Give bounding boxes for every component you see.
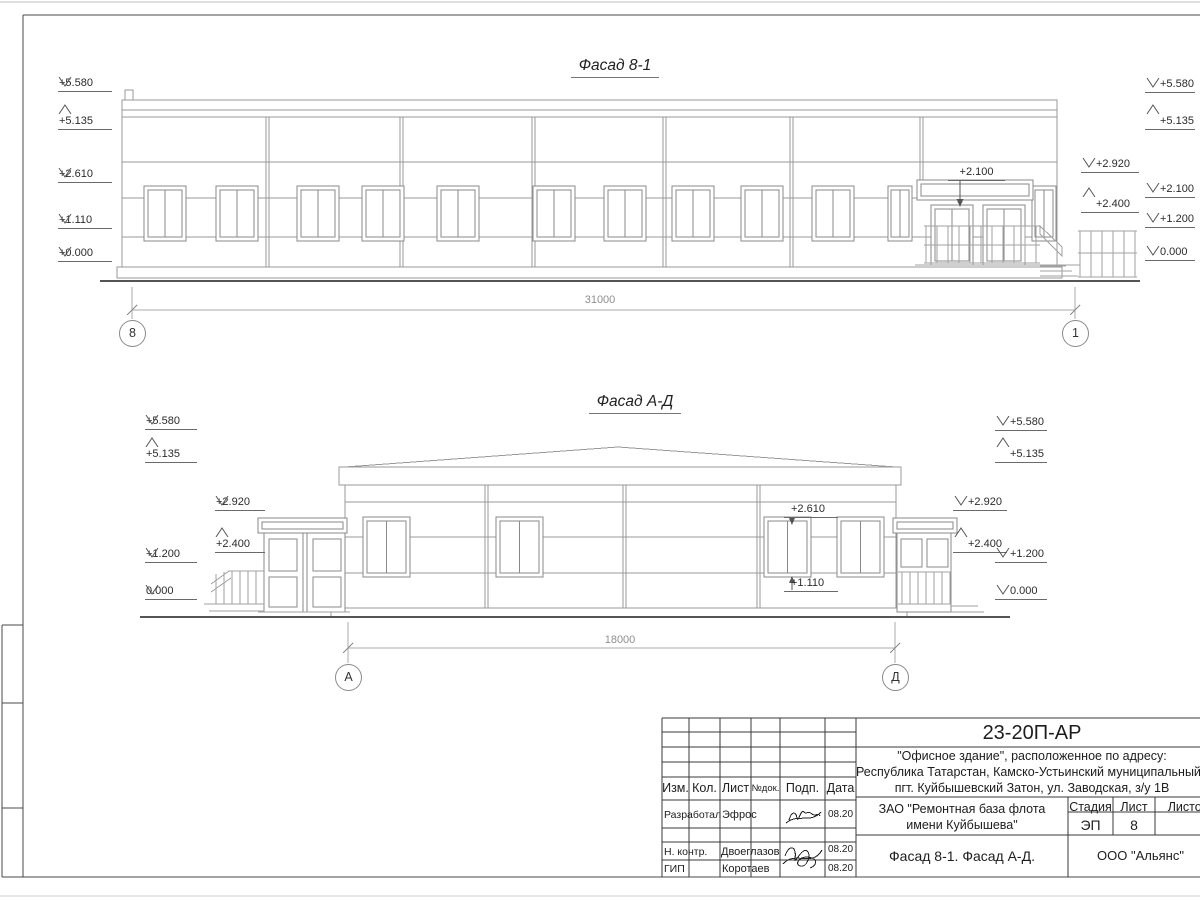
titleblock-row-name: Эфрос [722, 806, 757, 824]
level-arrow-up-icon [215, 527, 229, 537]
titleblock-col-kol: Кол. [689, 778, 720, 798]
facade2-title: Фасад А-Д [560, 393, 710, 414]
elevation-mark: 0.000 [145, 585, 197, 600]
level-arrow-down-icon [145, 585, 159, 595]
facade-8-1-drawing [100, 90, 1140, 319]
level-arrow-down-icon [996, 548, 1010, 558]
axis-marker: 8 [119, 320, 146, 347]
window-top-level-mark: +2.610 [784, 503, 838, 518]
elevation-mark: +2.610 [58, 168, 112, 183]
titleblock-address-line1: "Офисное здание", расположенное по адрес… [856, 748, 1200, 765]
titleblock-address-line3: пгт. Куйбышевский Затон, ул. Заводская, … [856, 780, 1200, 797]
drawing-sheet: Фасад 8-1 Фасад А-Д +5.580 +5.135 +2.610… [0, 0, 1200, 900]
ramp-railing [1078, 231, 1137, 277]
elevation-mark: +5.580 [58, 77, 112, 92]
axis-marker: А [335, 664, 362, 691]
titleblock-row-role: ГИП [664, 860, 685, 878]
elevation-mark: +5.135 [145, 448, 197, 463]
elevation-mark: +2.920 [1081, 158, 1139, 173]
elevation-mark: +1.110 [58, 214, 112, 229]
titleblock-sheets-label: Листов [1158, 797, 1200, 817]
titleblock-row-role: Н. контр. [664, 843, 707, 861]
titleblock-col-podp: Подп. [780, 778, 825, 798]
elevation-mark: 0.000 [1145, 246, 1195, 261]
elevation-mark: +5.580 [145, 415, 197, 430]
level-arrow-down-icon [996, 585, 1010, 595]
elevation-mark: +2.100 [1145, 183, 1195, 198]
level-arrow-down-icon [996, 416, 1010, 426]
titleblock-sheet-value: 8 [1113, 814, 1155, 836]
elevation-mark: +5.135 [995, 448, 1047, 463]
level-arrow-down-icon [1146, 213, 1160, 223]
level-arrow-down-icon [1146, 246, 1160, 256]
elevation-mark: +5.135 [58, 115, 112, 130]
facade1-title: Фасад 8-1 [540, 57, 690, 78]
axis-marker: Д [882, 664, 909, 691]
titleblock-row-role: Разработал [664, 806, 721, 824]
elevation-mark: +1.200 [995, 548, 1047, 563]
facade-a-d-drawing [140, 447, 1010, 663]
titleblock-document-code: 23-20П-АР [856, 720, 1200, 746]
titleblock-row-date: 08.20 [826, 860, 855, 878]
level-arrow-up-icon [996, 437, 1010, 447]
titleblock-company: ООО "Альянс" [1068, 842, 1200, 870]
elevation-mark: +5.580 [1145, 78, 1195, 93]
titleblock-col-data: Дата [825, 778, 856, 798]
elevation-mark: +5.135 [1145, 115, 1195, 130]
elevation-mark: +2.400 [1081, 198, 1139, 213]
level-arrow-up-icon [954, 527, 968, 537]
titleblock-col-izm: Изм. [662, 778, 689, 798]
titleblock-row-name: Двоеглазов [721, 843, 779, 861]
titleblock-client-line2: имени Куйбышева" [858, 817, 1066, 833]
titleblock-col-ndok: №док. [751, 778, 780, 799]
level-arrow-up-icon [1146, 104, 1160, 114]
level-arrow-down-icon [215, 496, 229, 506]
titleblock-row-name: Коротаев [722, 860, 770, 878]
titleblock-client-line1: ЗАО "Ремонтная база флота [858, 801, 1066, 817]
elevation-mark: +2.920 [953, 496, 1007, 511]
level-arrow-down-icon [58, 214, 72, 224]
level-arrow-down-icon [1146, 78, 1160, 88]
titleblock-stage-value: ЭП [1068, 814, 1113, 836]
level-arrow-up-icon [145, 437, 159, 447]
right-vestibule [893, 518, 957, 612]
window-bottom-level-mark: +1.110 [784, 577, 838, 592]
left-vestibule [258, 518, 347, 612]
level-arrow-down-icon [1146, 183, 1160, 193]
elevation-mark: +2.920 [215, 496, 265, 511]
entrance-level-mark: +2.100 [948, 166, 1005, 181]
level-arrow-up-icon [58, 104, 72, 114]
titleblock-address-line2: Республика Татарстан, Камско-Устьинский … [856, 764, 1200, 781]
level-arrow-down-icon [145, 548, 159, 558]
titleblock-row-date: 08.20 [826, 806, 855, 824]
elevation-mark: +0.000 [58, 247, 112, 262]
level-arrow-down-icon [58, 77, 72, 87]
dimension-label: 18000 [570, 634, 670, 646]
level-arrow-down-icon [58, 247, 72, 257]
level-arrow-down-icon [145, 415, 159, 425]
dimension-label: 31000 [550, 294, 650, 306]
level-arrow-down-icon [58, 168, 72, 178]
level-arrow-down-icon [1082, 158, 1096, 168]
titleblock-sheet-title: Фасад 8-1. Фасад А-Д. [858, 842, 1066, 870]
level-arrow-up-icon [1082, 187, 1096, 197]
level-arrow-down-icon [954, 496, 968, 506]
elevation-mark: +5.580 [995, 416, 1047, 431]
elevation-mark: 0.000 [995, 585, 1047, 600]
elevation-mark: +1.200 [145, 548, 197, 563]
elevation-mark: +2.400 [215, 538, 265, 553]
axis-marker: 1 [1062, 320, 1089, 347]
elevation-mark: +1.200 [1145, 213, 1195, 228]
titleblock-row-date: 08.20 [826, 841, 855, 859]
titleblock-col-list: Лист [720, 778, 751, 798]
